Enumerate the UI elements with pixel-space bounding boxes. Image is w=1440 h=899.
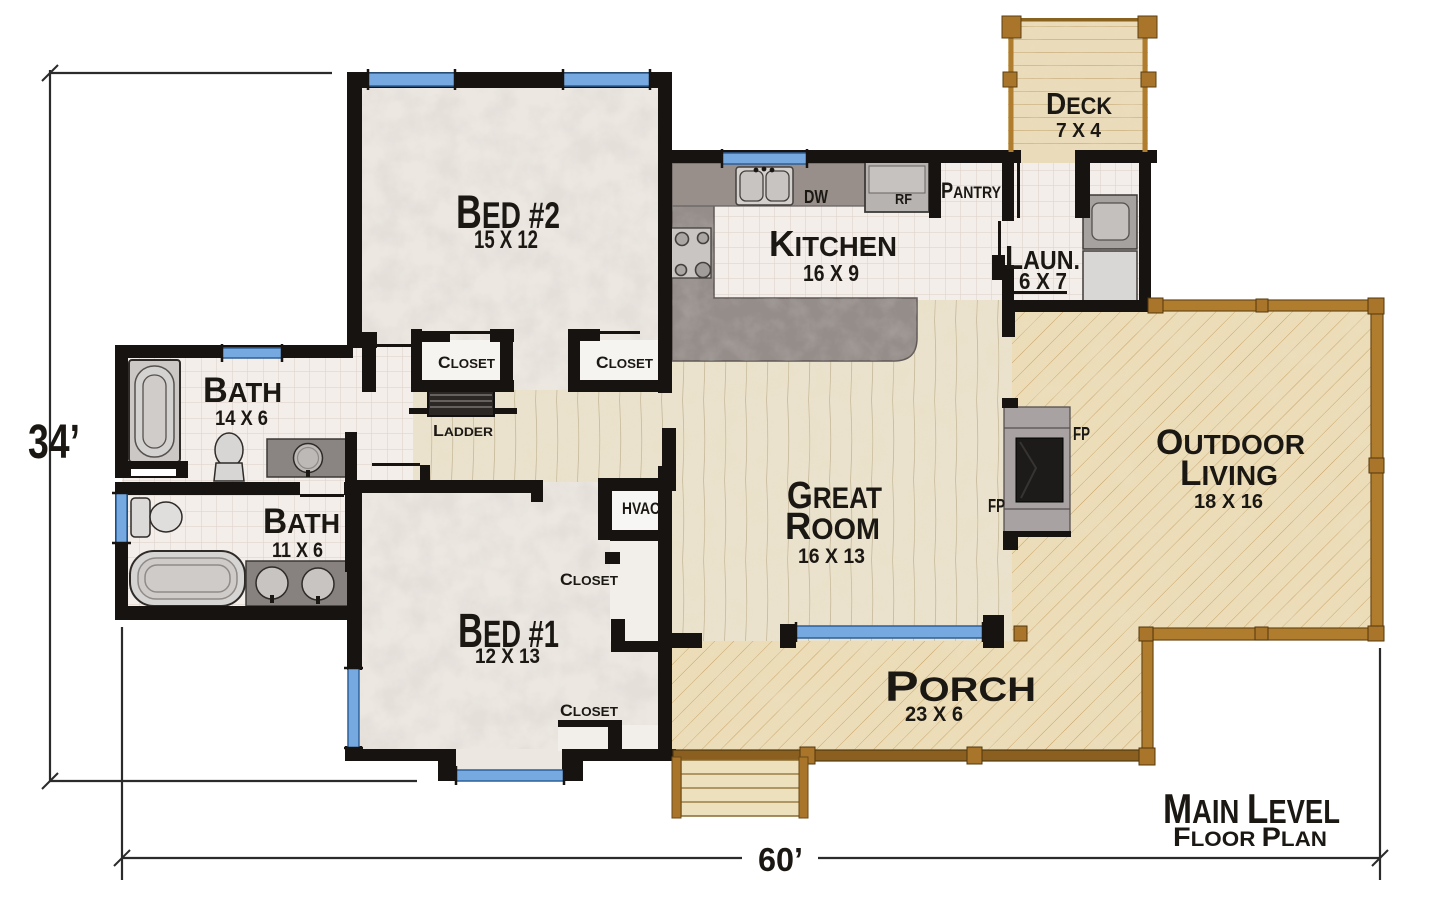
svg-text:FP: FP — [988, 496, 1005, 516]
svg-text:HVAC: HVAC — [622, 499, 660, 518]
svg-text:15 X 12: 15 X 12 — [474, 226, 538, 254]
svg-text:6 X 7: 6 X 7 — [1019, 268, 1067, 294]
svg-text:11 X 6: 11 X 6 — [272, 539, 323, 562]
svg-text:60’: 60’ — [758, 841, 803, 878]
svg-text:CLOSET: CLOSET — [596, 353, 653, 372]
svg-text:7 X 4: 7 X 4 — [1056, 120, 1102, 142]
svg-text:16 X 13: 16 X 13 — [798, 545, 865, 568]
svg-text:FP: FP — [1073, 424, 1090, 444]
svg-text:16 X 9: 16 X 9 — [803, 260, 859, 286]
svg-text:OUTDOOR: OUTDOOR — [1156, 423, 1305, 462]
svg-text:RF: RF — [895, 191, 912, 208]
svg-text:23 X 6: 23 X 6 — [905, 703, 963, 726]
svg-text:12 X 13: 12 X 13 — [475, 645, 540, 668]
svg-text:CLOSET: CLOSET — [560, 570, 618, 589]
svg-text:34’: 34’ — [28, 416, 80, 469]
svg-text:14 X 6: 14 X 6 — [215, 407, 268, 430]
svg-text:LADDER: LADDER — [433, 423, 493, 440]
svg-text:CLOSET: CLOSET — [560, 701, 618, 720]
svg-text:18 X 16: 18 X 16 — [1194, 491, 1263, 513]
svg-text:BATH: BATH — [263, 502, 340, 541]
svg-text:DW: DW — [804, 187, 828, 207]
svg-text:LIVING: LIVING — [1180, 454, 1278, 493]
svg-text:BATH: BATH — [203, 371, 282, 410]
svg-text:ROOM: ROOM — [785, 506, 880, 548]
svg-text:CLOSET: CLOSET — [438, 353, 495, 372]
